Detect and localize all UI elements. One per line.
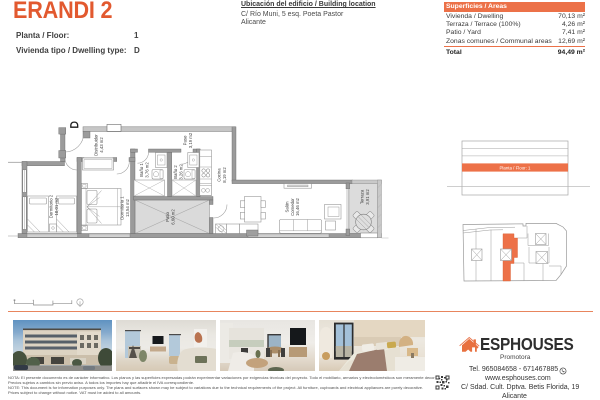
svg-text:3,76 m2: 3,76 m2 [144, 162, 149, 178]
svg-text:Dormitorio 2: Dormitorio 2 [49, 194, 54, 218]
svg-text:3,26 m2: 3,26 m2 [178, 164, 183, 180]
svg-text:Baño 1: Baño 1 [139, 163, 144, 177]
svg-text:13,54 m2: 13,54 m2 [125, 198, 130, 217]
svg-text:6,60 m2: 6,60 m2 [170, 209, 175, 225]
svg-text:Dormitorio 1: Dormitorio 1 [120, 196, 125, 220]
svg-text:Comedor: Comedor [290, 198, 295, 216]
svg-text:Patio: Patio [165, 211, 170, 221]
svg-text:10,01 m2: 10,01 m2 [54, 197, 59, 216]
svg-text:Planta / Floor: 1: Planta / Floor: 1 [500, 165, 532, 170]
svg-text:Paso: Paso [183, 135, 188, 145]
svg-text:Cocina: Cocina [217, 168, 222, 182]
svg-text:8,19 m2: 8,19 m2 [222, 167, 227, 183]
svg-text:Distribuidor: Distribuidor [94, 134, 99, 156]
svg-text:Terraza: Terraza [360, 189, 365, 204]
svg-text:16,46 m2: 16,46 m2 [295, 197, 300, 216]
svg-text:Salón: Salón [285, 201, 290, 213]
svg-text:4,43 m2: 4,43 m2 [99, 137, 104, 153]
svg-text:3,19 m2: 3,19 m2 [188, 132, 193, 148]
svg-text:Baño 2: Baño 2 [173, 165, 178, 179]
svg-text:3,91 m2: 3,91 m2 [365, 189, 370, 205]
